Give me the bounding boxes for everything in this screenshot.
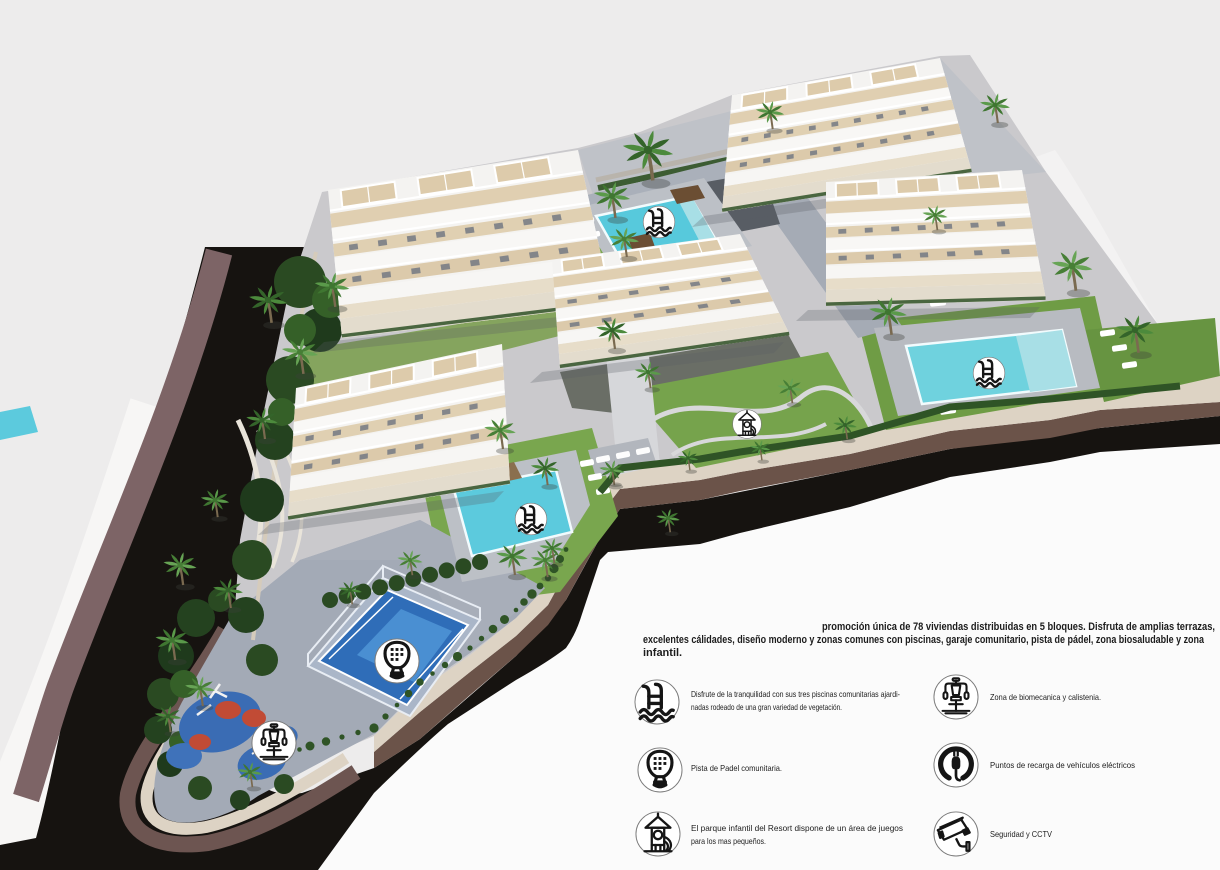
svg-text:Seguridad y CCTV: Seguridad y CCTV xyxy=(990,830,1052,839)
svg-text:Disfrute de la tranquilidad co: Disfrute de la tranquilidad con sus tres… xyxy=(691,690,900,699)
svg-text:Puntos de recarga de vehículos: Puntos de recarga de vehículos eléctrico… xyxy=(990,761,1135,770)
svg-text:El parque infantil del Resort: El parque infantil del Resort dispone de… xyxy=(691,824,903,833)
svg-text:infantil.: infantil. xyxy=(643,647,682,659)
svg-text:excelentes cálidades, diseño m: excelentes cálidades, diseño moderno y z… xyxy=(643,634,1205,646)
svg-text:promoción única de 78 vivienda: promoción única de 78 viviendas distribu… xyxy=(822,621,1215,633)
svg-text:Zona de biomecanica y calisten: Zona de biomecanica y calistenia. xyxy=(990,693,1101,702)
svg-text:Pista de Padel comunitaria.: Pista de Padel comunitaria. xyxy=(691,764,782,773)
svg-text:nadas rodeado de una gran vari: nadas rodeado de una gran variedad de ve… xyxy=(691,703,842,712)
svg-text:para los mas pequeños.: para los mas pequeños. xyxy=(691,837,766,846)
